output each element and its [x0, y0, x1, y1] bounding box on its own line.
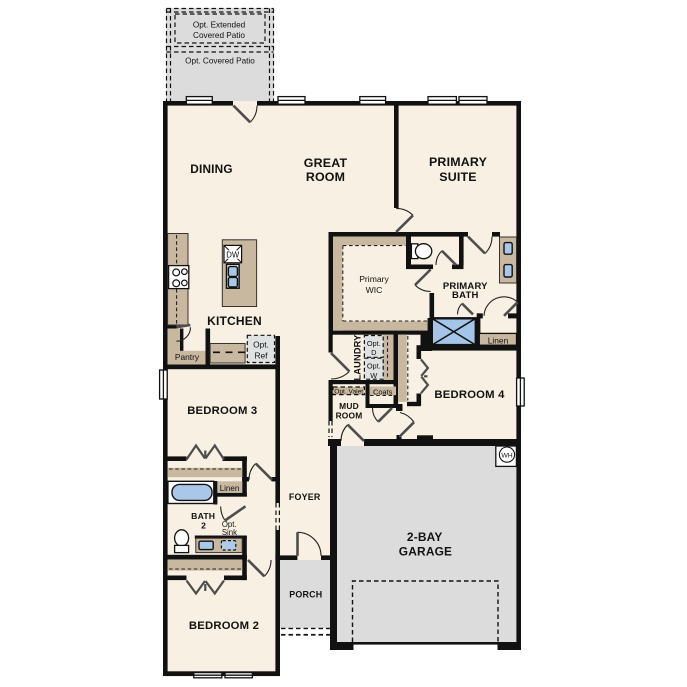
svg-text:Covered Patio: Covered Patio [193, 31, 245, 40]
svg-text:D: D [371, 348, 376, 357]
svg-text:FOYER: FOYER [289, 492, 321, 502]
svg-text:ROOM: ROOM [306, 170, 345, 184]
svg-text:Opt. Valet: Opt. Valet [334, 389, 363, 396]
svg-text:BEDROOM 4: BEDROOM 4 [434, 389, 505, 401]
svg-text:GREAT: GREAT [304, 156, 348, 170]
svg-text:MUD: MUD [339, 401, 359, 411]
svg-text:DINING: DINING [190, 162, 233, 176]
svg-text:ROOM: ROOM [336, 410, 363, 420]
svg-text:SUITE: SUITE [439, 170, 477, 184]
svg-text:Linen: Linen [220, 484, 240, 493]
svg-text:Opt.: Opt. [253, 339, 269, 349]
svg-text:PRIMARY: PRIMARY [429, 155, 488, 169]
svg-text:KITCHEN: KITCHEN [207, 314, 262, 328]
svg-text:LAUNDRY: LAUNDRY [352, 335, 362, 381]
svg-text:Sink: Sink [222, 528, 237, 537]
svg-text:BEDROOM 3: BEDROOM 3 [187, 405, 257, 417]
svg-text:Primary: Primary [359, 274, 389, 284]
svg-text:Opt. Extended: Opt. Extended [193, 21, 246, 30]
svg-text:Pantry: Pantry [175, 352, 200, 362]
svg-text:GARAGE: GARAGE [399, 544, 452, 558]
svg-text:DW: DW [226, 250, 240, 259]
svg-text:WH: WH [501, 452, 512, 459]
svg-text:2: 2 [201, 520, 206, 530]
svg-text:BATH: BATH [191, 511, 215, 521]
svg-text:BEDROOM 2: BEDROOM 2 [189, 620, 259, 632]
svg-text:Linen: Linen [488, 336, 509, 346]
svg-text:W: W [370, 371, 377, 380]
svg-text:Opt.: Opt. [367, 362, 381, 371]
svg-text:2-BAY: 2-BAY [407, 530, 443, 544]
svg-text:WIC: WIC [366, 285, 383, 295]
svg-text:Opt. Covered Patio: Opt. Covered Patio [185, 57, 255, 66]
svg-text:PORCH: PORCH [289, 590, 322, 600]
svg-text:Ref: Ref [254, 350, 268, 360]
svg-text:Opt.: Opt. [367, 339, 381, 348]
svg-text:BATH: BATH [452, 290, 478, 301]
